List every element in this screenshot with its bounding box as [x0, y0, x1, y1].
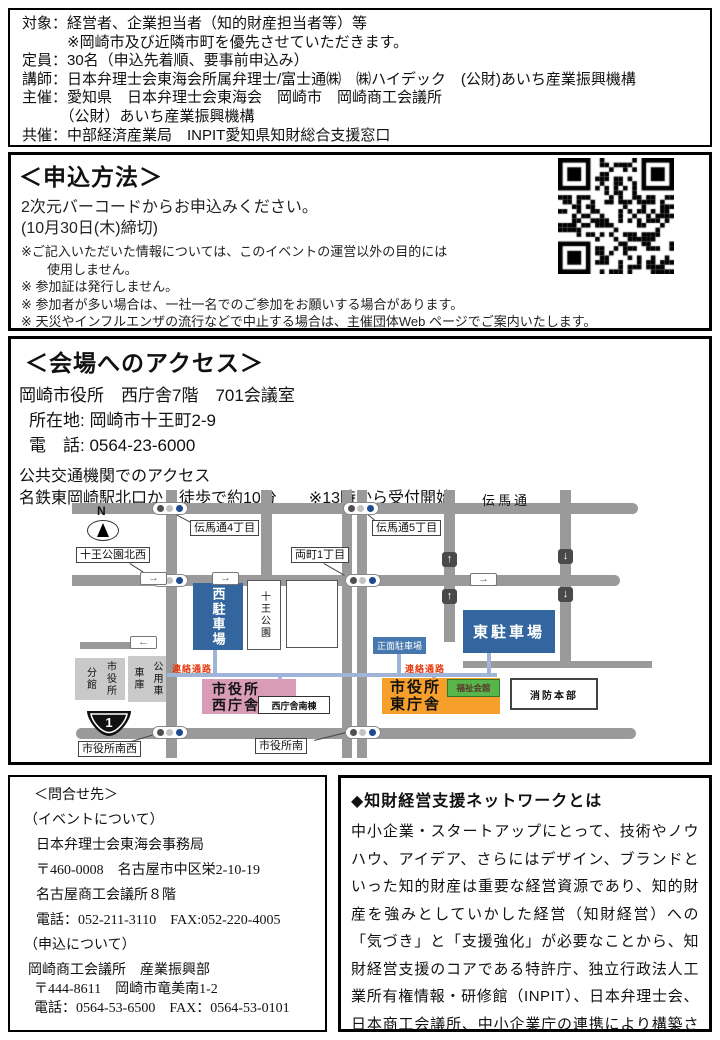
facts-line-cohosts: 共催：中部経済産業局 INPIT愛知県知財総合支援窓口	[22, 127, 698, 146]
traffic-signal	[152, 726, 188, 739]
building-east-parking: 東駐車場	[463, 610, 555, 653]
event-facts-box: 対象：経営者、企業担当者（知的財産担当者等）等 ※岡崎市及び近隣市町を優先させて…	[8, 8, 712, 147]
east-office-label-1: 市役所	[390, 679, 441, 696]
signal-label-shiyakusho-s: 市役所南	[255, 738, 307, 754]
west-office-label-2: 西庁舎	[212, 697, 260, 713]
contact-event-org: 日本弁理士会東海会事務局	[20, 836, 315, 855]
walkway-horizontal	[167, 673, 497, 677]
compass-needle-icon	[97, 523, 109, 537]
road-vertical-3a	[342, 490, 352, 758]
facts-line-capacity: 定員：30名（申込先着順、要事前申込み）	[22, 52, 698, 71]
contact-event-heading: （イベントについて）	[20, 811, 315, 830]
application-note: ※ 参加者が多い場合は、一社一名でのご参加をお願いする場合があります。	[21, 296, 709, 314]
application-box: ＜申込方法＞ 2次元バーコードからお申込みください。 (10月30日(木)締切)…	[8, 152, 712, 331]
contact-event-address2: 名古屋商工会議所８階	[20, 886, 315, 905]
east-office-label-2: 東庁舎	[390, 696, 441, 713]
building-welfare-hall: 福祉会館	[447, 679, 500, 697]
compass-north-label: N	[97, 504, 106, 518]
front-parking-label: 正面駐車場	[377, 639, 422, 652]
walkway-stub	[213, 650, 217, 673]
left-arrow-icon: ←	[130, 636, 157, 649]
venue-name: 岡崎市役所 西庁舎7階 701会議室	[19, 385, 709, 407]
walkway-stub	[487, 653, 491, 673]
signal-label-juo-nw: 十王公園北西	[76, 547, 150, 563]
right-arrow-icon: →	[140, 572, 167, 585]
contact-apply-address: 〒444-8611 岡崎市竜美南1-2	[20, 980, 315, 999]
facts-line-lecturers: 講師：日本弁理士会東海会所属弁理士/富士通㈱ ㈱ハイデック (公財)あいち産業振…	[22, 71, 698, 90]
road-vertical-5	[560, 490, 571, 666]
traffic-signal	[345, 726, 381, 739]
west-office-label-1: 市役所	[212, 681, 260, 697]
building-annex-block: 分館 市役所	[75, 658, 125, 700]
route-1-shield: 1	[86, 710, 132, 737]
road-vertical-2	[261, 490, 272, 587]
building-juo-park: 十王公園	[247, 580, 281, 650]
signal-label-shiyakusho-sw: 市役所南西	[78, 741, 141, 757]
contact-apply-heading: （申込について）	[20, 936, 315, 955]
shiyakusho-label: 市役所	[103, 661, 118, 697]
contact-apply-tel: 電話：0564-53-6500 FAX：0564-53-0101	[20, 999, 315, 1018]
signal-label-temma4: 伝馬通4丁目	[190, 520, 259, 536]
traffic-signal	[345, 574, 381, 587]
right-arrow-icon: →	[212, 572, 239, 585]
network-box: ◆知財経営支援ネットワークとは 中小企業・スタートアップにとって、技術やノウハウ…	[338, 775, 712, 1032]
fire-hq-label: 消防本部	[530, 687, 578, 702]
network-title: ◆知財経営支援ネットワークとは	[351, 787, 699, 811]
facts-line-priority: ※岡崎市及び近隣市町を優先させていただきます。	[22, 34, 698, 53]
compass-circle	[87, 520, 119, 541]
access-map: 伝馬通 N 連絡通路 連絡通路 西駐車場 十王公園	[72, 490, 652, 762]
transit-heading: 公共交通機関でのアクセス	[19, 467, 709, 487]
shako-label: 車庫	[130, 667, 145, 691]
facts-line-hosts: 主催：愛知県 日本弁理士会東海会 岡崎市 岡崎商工会議所	[22, 89, 698, 108]
west-parking-label: 西駐車場	[209, 587, 228, 647]
up-arrow-icon: ↑	[442, 589, 457, 604]
venue-phone: 電 話: 0564-23-6000	[29, 435, 709, 457]
traffic-signal	[152, 502, 188, 515]
building-garage-block: 車庫 公用車	[128, 656, 166, 702]
walkway-label-west: 連絡通路	[172, 662, 212, 675]
road-stub-west	[80, 642, 134, 649]
contact-event-tel: 電話：052-211-3110 FAX:052-220-4005	[20, 911, 315, 930]
contact-box: ＜問合せ先＞ （イベントについて） 日本弁理士会東海会事務局 〒460-0008…	[8, 775, 327, 1032]
bunkan-label: 分館	[83, 667, 98, 691]
compass-rose: N	[86, 504, 122, 546]
network-body: 中小企業・スタートアップにとって、技術やノウハウ、アイデア、さらにはデザイン、ブ…	[351, 818, 699, 1040]
koyosha-label: 公用車	[149, 661, 164, 697]
qr-code	[558, 158, 674, 274]
facts-line-target: 対象：経営者、企業担当者（知的財産担当者等）等	[22, 15, 698, 34]
east-parking-label: 東駐車場	[473, 621, 545, 642]
welfare-hall-label: 福祉会館	[456, 682, 490, 694]
route-number: 1	[105, 715, 112, 730]
road-vertical-3b	[357, 490, 367, 758]
building-west-annex: 西庁舎南棟	[258, 696, 330, 714]
walkway-stub	[397, 654, 401, 673]
west-annex-label: 西庁舎南棟	[271, 699, 316, 712]
contact-apply-org: 岡崎商工会議所 産業振興部	[20, 961, 315, 980]
contact-event-address1: 〒460-0008 名古屋市中区栄2-10-19	[20, 861, 315, 880]
access-title: ＜会場へのアクセス＞	[25, 344, 709, 378]
building-block-plain	[286, 580, 338, 648]
application-note: ※ 天災やインフルエンザの流行などで中止する場合は、主催団体Web ページでご案…	[21, 313, 709, 331]
building-west-parking: 西駐車場	[193, 583, 243, 650]
access-box: ＜会場へのアクセス＞ 岡崎市役所 西庁舎7階 701会議室 所在地: 岡崎市十王…	[8, 336, 712, 765]
down-arrow-icon: ↓	[558, 549, 573, 564]
up-arrow-icon: ↑	[442, 552, 457, 567]
right-arrow-icon: →	[470, 573, 497, 586]
walkway-label-east: 連絡通路	[405, 662, 445, 675]
signal-label-temma5: 伝馬通5丁目	[372, 520, 441, 536]
signal-label-ryomachi1: 両町1丁目	[291, 547, 349, 563]
down-arrow-icon: ↓	[558, 587, 573, 602]
juo-park-label: 十王公園	[257, 591, 272, 639]
building-fire-hq: 消防本部	[510, 678, 598, 710]
road-vertical-1	[166, 490, 177, 758]
flyer-page: 対象：経営者、企業担当者（知的財産担当者等）等 ※岡崎市及び近隣市町を優先させて…	[0, 0, 720, 1040]
application-note: ※ 参加証は発行しません。	[21, 278, 709, 296]
facts-line-hosts2: （公財）あいち産業振興機構	[22, 108, 698, 127]
contact-title: ＜問合せ先＞	[20, 786, 315, 805]
building-front-parking: 正面駐車場	[373, 637, 426, 654]
road-minor-east	[463, 661, 652, 668]
traffic-signal	[343, 502, 379, 515]
street-name-temma: 伝馬通	[482, 490, 530, 509]
venue-address: 所在地: 岡崎市十王町2-9	[29, 410, 709, 432]
